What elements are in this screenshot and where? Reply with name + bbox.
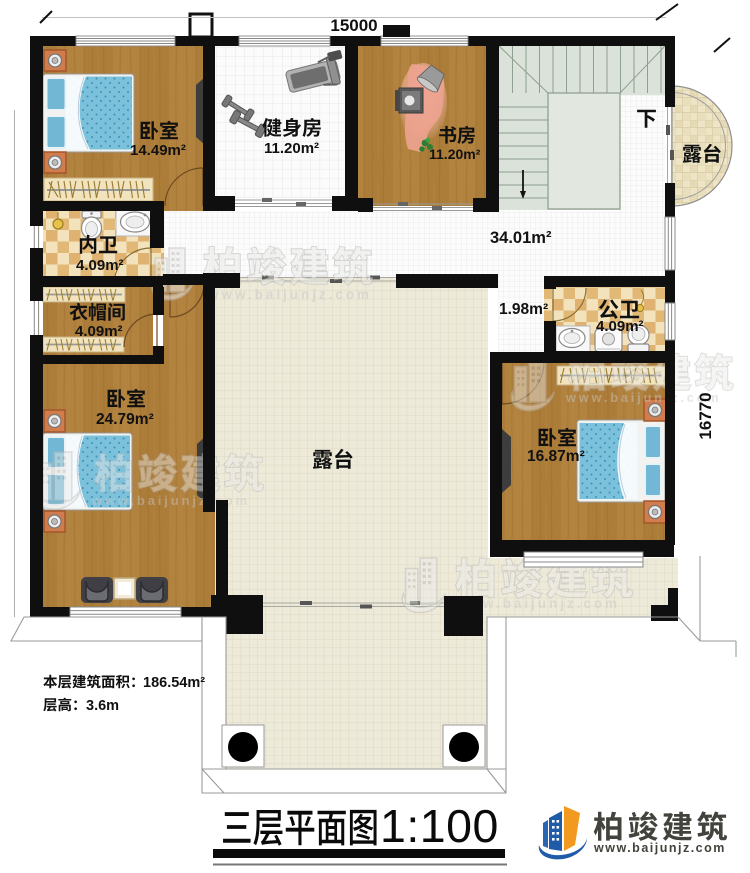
svg-text:24.79m²: 24.79m² bbox=[96, 411, 154, 428]
svg-text:34.01m²: 34.01m² bbox=[490, 229, 552, 247]
svg-text:www.baijunjz.com: www.baijunjz.com bbox=[593, 841, 726, 855]
svg-text:186.54m²: 186.54m² bbox=[143, 675, 205, 691]
svg-text:www.baijunjz.com: www.baijunjz.com bbox=[207, 287, 372, 302]
svg-text:16.87m²: 16.87m² bbox=[527, 448, 585, 465]
svg-text:16770: 16770 bbox=[696, 392, 715, 439]
svg-text:4.09m²: 4.09m² bbox=[76, 257, 124, 274]
svg-text:11.20m²: 11.20m² bbox=[429, 146, 481, 162]
svg-text:1.98m²: 1.98m² bbox=[499, 301, 548, 318]
svg-text:4.09m²: 4.09m² bbox=[596, 318, 644, 335]
svg-text:14.49m²: 14.49m² bbox=[130, 142, 186, 159]
svg-text:4.09m²: 4.09m² bbox=[75, 323, 123, 340]
svg-text:15000: 15000 bbox=[330, 16, 377, 35]
svg-text:11.20m²: 11.20m² bbox=[264, 140, 319, 157]
svg-text:1:100: 1:100 bbox=[380, 800, 499, 852]
svg-text:3.6m: 3.6m bbox=[86, 698, 119, 714]
